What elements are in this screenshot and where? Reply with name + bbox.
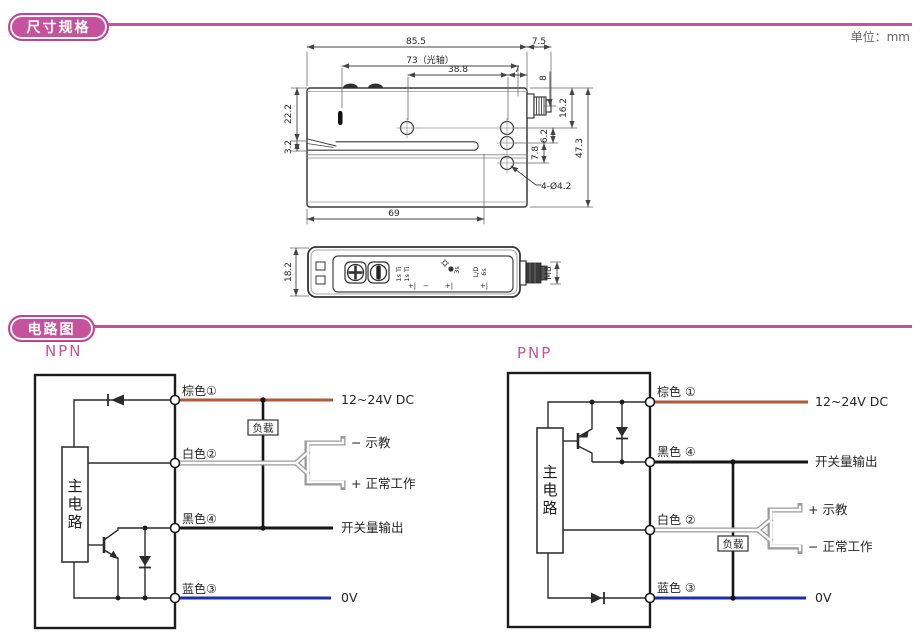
panel-mark-4: +| xyxy=(480,282,488,290)
pnp-wire-blue-label: 蓝色 ③ xyxy=(657,581,696,595)
optical-axis-mark xyxy=(338,111,343,125)
panel-col3-line2: 6s xyxy=(480,268,488,276)
mounting-holes xyxy=(401,122,514,170)
dim-overall-width: 85.5 xyxy=(406,37,426,47)
section-rule-circuit xyxy=(86,325,912,328)
dim-connector-offset: 8 xyxy=(539,75,549,81)
side-view-drawing: 85.5 7.5 73（光轴） 38.8 7 8 22.2 3.2 16.2 6… xyxy=(284,37,593,224)
dim-connector-len: 7.5 xyxy=(532,37,546,47)
unit-note: 单位：mm xyxy=(851,28,910,45)
indicator-window xyxy=(316,276,325,284)
pnp-label: PNP xyxy=(517,344,552,362)
dim-body-width: 18.2 xyxy=(284,262,294,282)
panel-mark-2: − xyxy=(423,282,429,290)
npn-wire-white-label: 白色② xyxy=(182,446,217,461)
pnp-main-circuit-box-label: 主电路 xyxy=(537,428,563,553)
dim-hole-span: 38.8 xyxy=(448,65,468,75)
dim-hole-to-edge: 7 xyxy=(514,65,520,75)
lens-bump-icon xyxy=(368,84,383,89)
npn-normal-label: + 正常工作 xyxy=(351,476,416,491)
indicator-window xyxy=(316,262,325,270)
dim-slot-height: 3.2 xyxy=(284,140,294,154)
npn-main-circuit-box-label: 主电路 xyxy=(62,447,88,562)
npn-wire-black-label: 黑色④ xyxy=(182,512,217,526)
datasheet-page: 尺寸规格 单位：mm 电路图 NPN PNP 主电路 主电路 xyxy=(0,0,920,637)
npn-clamp-diode xyxy=(139,556,151,568)
panel-col1-line2: 1s Ti xyxy=(403,266,411,281)
cross-adjuster-icon xyxy=(345,262,366,283)
npn-0v-label: 0V xyxy=(341,590,358,605)
dim-optical-axis: 73（光轴） xyxy=(406,54,453,66)
panel-col3-line1: L/D xyxy=(472,267,480,278)
dim-connector-height: 16.2 xyxy=(559,98,569,118)
npn-load-label: 负载 xyxy=(253,422,274,435)
pnp-output-label: 开关量输出 xyxy=(815,454,878,469)
dim-slot-depth: 69 xyxy=(388,209,400,219)
slot-adjuster-icon xyxy=(368,262,389,283)
pnp-clamp-diode xyxy=(616,427,628,439)
npn-label: NPN xyxy=(45,342,83,360)
npn-teach-label: − 示教 xyxy=(351,435,391,450)
npn-circuit-diagram: 负载 棕色① 白色② 黑色④ 蓝色③ 12~24V DC − 示教 + 正常工作… xyxy=(35,375,416,628)
dim-mount-holes: 4-Ø4.2 xyxy=(541,181,571,192)
pnp-circuit-diagram: 负载 棕色 ① 黑色 ④ 白色 ② 蓝色 ③ 12~24V DC 开关量输出 +… xyxy=(508,373,888,627)
panel-mark-1: +| xyxy=(408,282,416,290)
npn-wire-brown-label: 棕色① xyxy=(182,383,217,398)
npn-white-wire xyxy=(180,439,343,488)
drawings-canvas: 85.5 7.5 73（光轴） 38.8 7 8 22.2 3.2 16.2 6… xyxy=(0,0,920,637)
npn-wire-blue-label: 蓝色③ xyxy=(182,582,217,596)
lens-bump-icon xyxy=(343,84,358,89)
npn-supply-label: 12~24V DC xyxy=(341,392,414,407)
m8-connector-bottom xyxy=(520,261,547,285)
dim-hole-gap-b: 7.8 xyxy=(531,146,541,161)
pnp-emitter-arrow xyxy=(579,431,589,438)
pnp-normal-label: − 正常工作 xyxy=(808,539,873,554)
section-rule-dimensions xyxy=(100,23,912,26)
panel-col1-line1: 1s Ti xyxy=(395,266,403,281)
section-title-dimensions: 尺寸规格 xyxy=(8,13,109,41)
npn-emitter-arrow xyxy=(110,551,119,560)
dim-overall-height: 47.3 xyxy=(575,138,585,158)
pnp-teach-label: + 示教 xyxy=(808,502,848,517)
dim-thread: M8 xyxy=(544,266,554,280)
mode-icon xyxy=(441,259,453,271)
pnp-load-label: 负载 xyxy=(723,538,744,551)
dim-hole-gap-a: 6.2 xyxy=(540,129,550,143)
npn-output-label: 开关量输出 xyxy=(341,520,404,535)
pnp-wire-black-label: 黑色 ④ xyxy=(657,445,696,459)
pnp-supply-label: 12~24V DC xyxy=(815,394,888,409)
pnp-wire-brown-label: 棕色 ① xyxy=(657,384,696,399)
bottom-view-drawing: 1s Ti 1s Ti 3s L/D 6s +| − +| +| xyxy=(284,247,561,297)
pnp-wire-white-label: 白色 ② xyxy=(657,512,696,527)
panel-mark-3: +| xyxy=(445,282,453,290)
section-title-circuit: 电路图 xyxy=(8,315,95,342)
panel-col2: 3s xyxy=(453,266,461,274)
pnp-0v-label: 0V xyxy=(815,590,832,605)
dim-upper-height: 22.2 xyxy=(284,104,294,124)
